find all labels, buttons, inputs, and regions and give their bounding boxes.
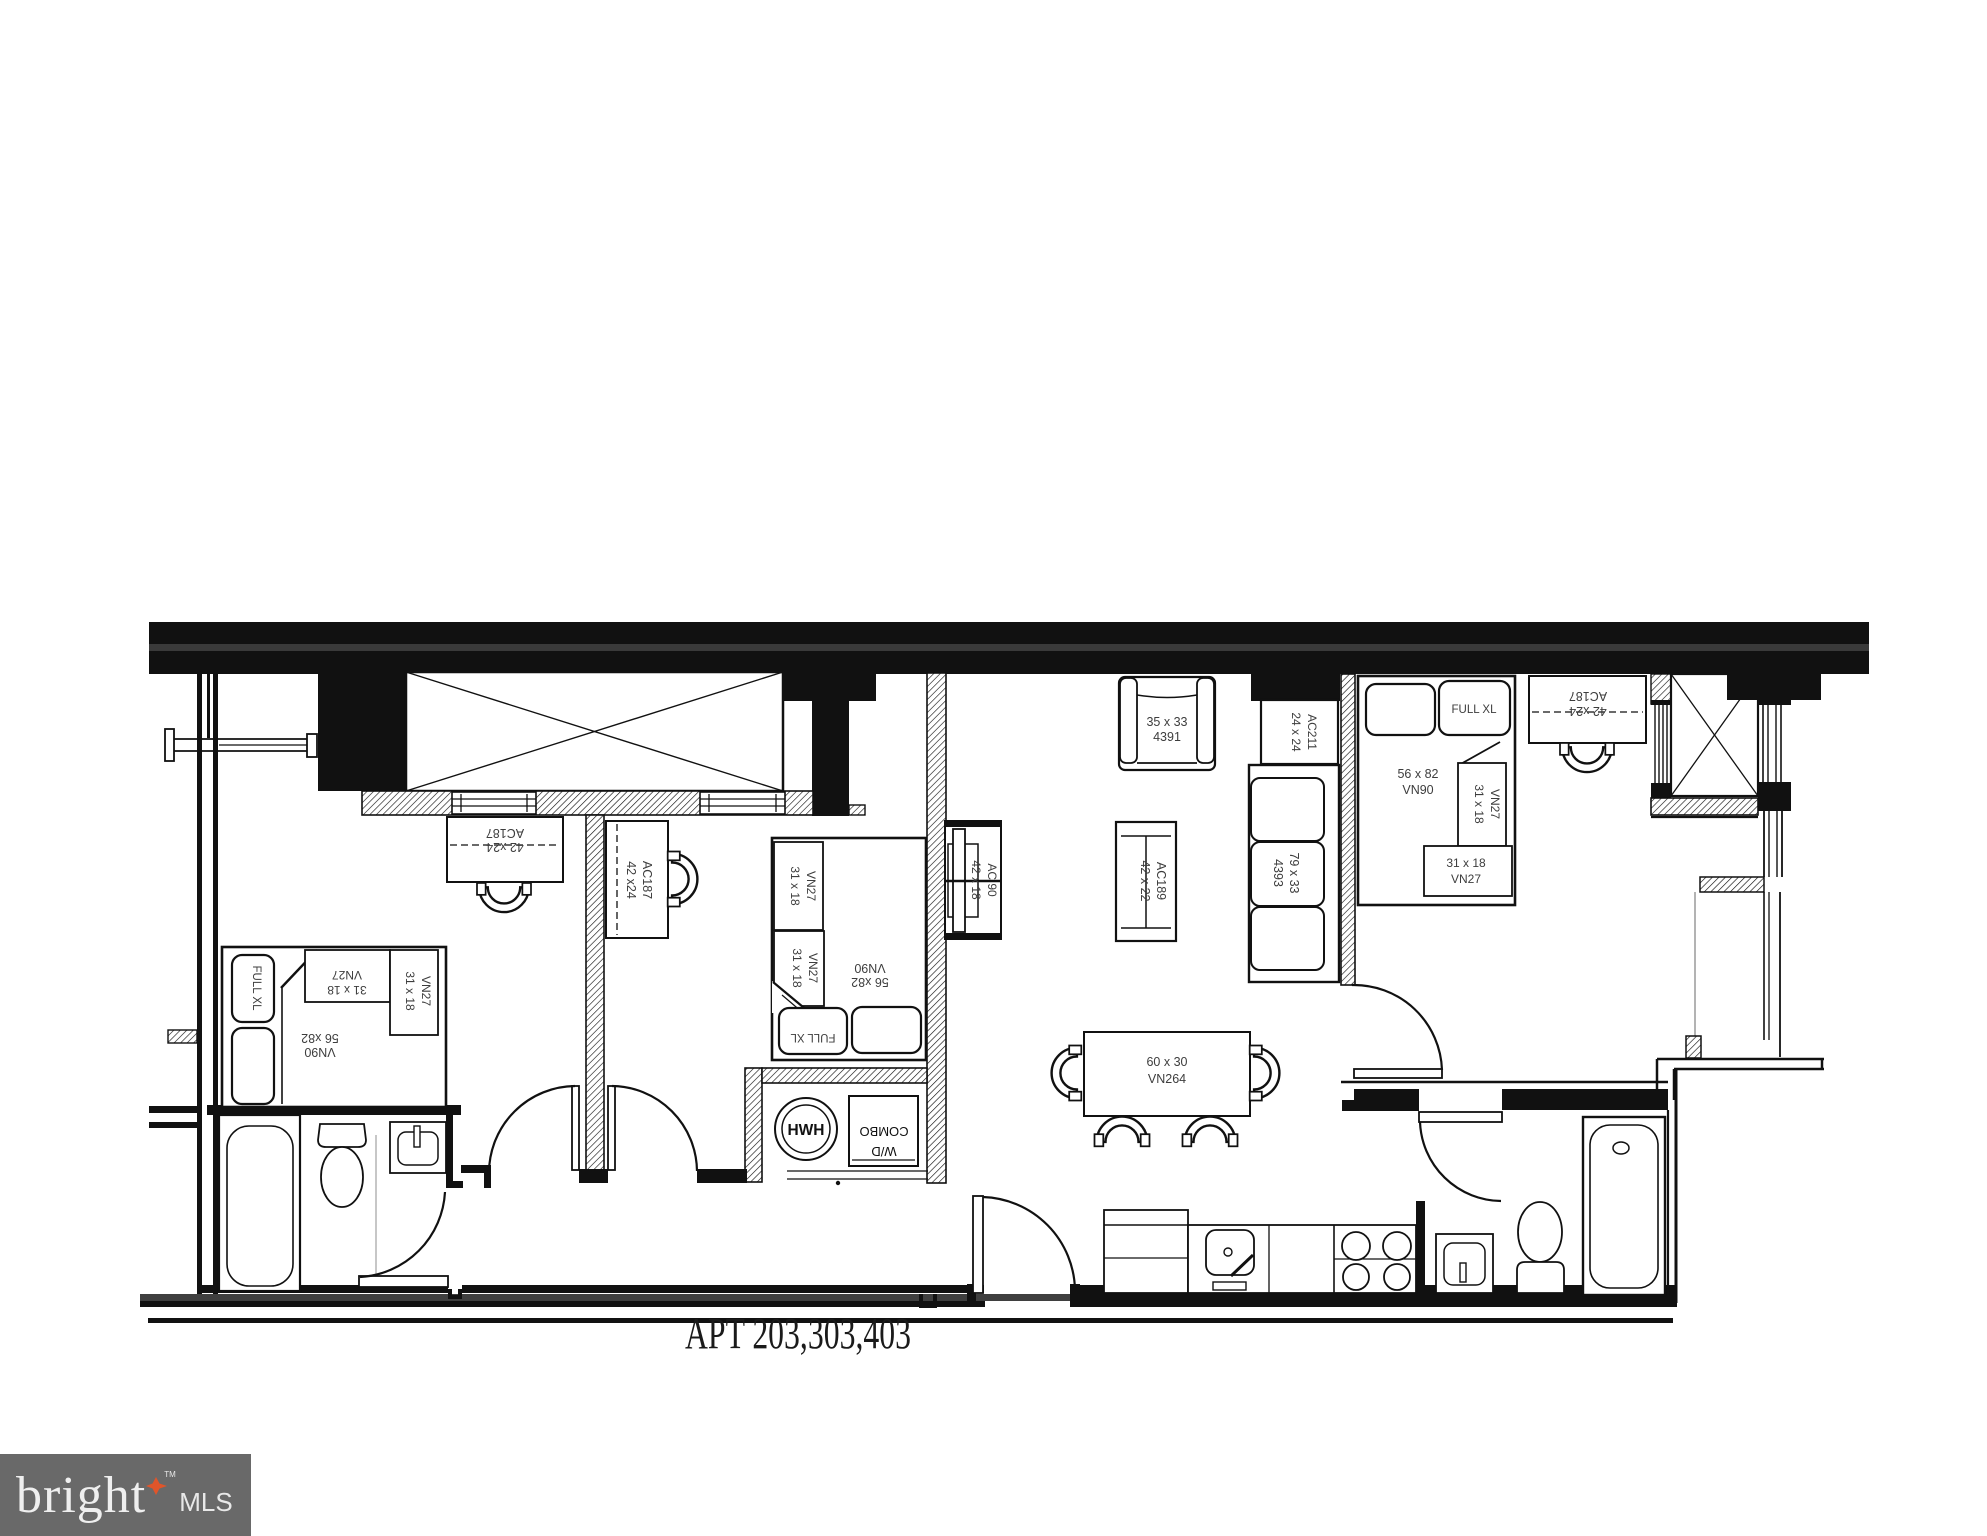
svg-text:VN90: VN90 bbox=[304, 1045, 335, 1059]
svg-text:4393: 4393 bbox=[1271, 859, 1285, 887]
svg-text:TM: TM bbox=[164, 1470, 176, 1479]
svg-text:HWH: HWH bbox=[787, 1122, 824, 1139]
svg-text:FULL XL: FULL XL bbox=[790, 1031, 836, 1043]
svg-text:AC187: AC187 bbox=[1569, 689, 1607, 703]
svg-text:VN264: VN264 bbox=[1148, 1072, 1186, 1086]
svg-text:56 x82: 56 x82 bbox=[301, 1031, 339, 1045]
svg-text:24 x 24: 24 x 24 bbox=[1289, 712, 1303, 752]
svg-text:56 x82: 56 x82 bbox=[851, 975, 889, 989]
svg-text:79 x 33: 79 x 33 bbox=[1287, 852, 1301, 893]
svg-text:VN27: VN27 bbox=[419, 976, 433, 1006]
svg-text:42 x24: 42 x24 bbox=[624, 861, 638, 899]
svg-text:56 x 82: 56 x 82 bbox=[1397, 767, 1438, 781]
svg-text:42 x 18: 42 x 18 bbox=[969, 860, 983, 900]
svg-text:W/D: W/D bbox=[871, 1144, 896, 1159]
svg-text:31 x 18: 31 x 18 bbox=[790, 948, 804, 988]
svg-text:AC211: AC211 bbox=[1305, 714, 1319, 750]
svg-text:VN90: VN90 bbox=[854, 961, 885, 975]
svg-text:FULL XL: FULL XL bbox=[250, 966, 262, 1012]
svg-text:AC187: AC187 bbox=[486, 826, 524, 840]
svg-text:VN27: VN27 bbox=[804, 871, 818, 901]
svg-text:VN90: VN90 bbox=[1402, 783, 1433, 797]
svg-text:AC187: AC187 bbox=[640, 861, 654, 899]
svg-text:VN27: VN27 bbox=[332, 968, 362, 982]
svg-text:VN27: VN27 bbox=[806, 953, 820, 983]
svg-text:31 x 18: 31 x 18 bbox=[327, 983, 367, 997]
svg-text:AC189: AC189 bbox=[1154, 862, 1168, 900]
svg-text:31 x 18: 31 x 18 bbox=[403, 971, 417, 1011]
svg-text:VN27: VN27 bbox=[1451, 872, 1481, 886]
svg-text:AC 90: AC 90 bbox=[985, 863, 999, 897]
svg-text:42 x24: 42 x24 bbox=[486, 840, 524, 854]
svg-text:60 x 30: 60 x 30 bbox=[1146, 1055, 1187, 1069]
svg-text:31 x 18: 31 x 18 bbox=[788, 866, 802, 906]
svg-text:4391: 4391 bbox=[1153, 730, 1181, 744]
svg-text:35 x 33: 35 x 33 bbox=[1146, 715, 1187, 729]
svg-text:42 x24: 42 x24 bbox=[1569, 704, 1607, 718]
svg-text:bright: bright bbox=[16, 1467, 146, 1524]
svg-text:COMBO: COMBO bbox=[859, 1124, 908, 1139]
svg-text:31 x 18: 31 x 18 bbox=[1472, 784, 1486, 824]
svg-text:FULL XL: FULL XL bbox=[1452, 704, 1498, 716]
svg-text:APT 203,303,403: APT 203,303,403 bbox=[685, 1309, 911, 1358]
svg-text:42 x 22: 42 x 22 bbox=[1138, 860, 1152, 901]
svg-text:31 x 18: 31 x 18 bbox=[1446, 856, 1486, 870]
svg-text:VN27: VN27 bbox=[1488, 789, 1502, 819]
svg-text:MLS: MLS bbox=[179, 1487, 232, 1517]
